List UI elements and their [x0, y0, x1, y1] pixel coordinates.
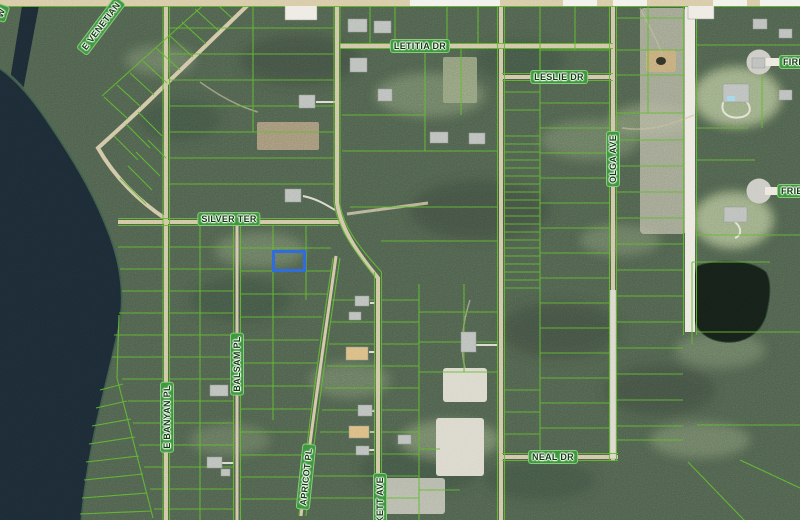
street-label-frie-partial: FRIE	[777, 184, 800, 198]
street-label-neal-dr: NEAL DR	[528, 450, 578, 464]
map-viewport[interactable]: W E VENETIAN LETITIA DR LESLIE DR FIRE F…	[0, 0, 800, 520]
street-label-e-banyan-pl: E BANYAN PL	[160, 381, 174, 452]
street-label-balsam-pl: BALSAM PL	[230, 332, 244, 395]
texture-overlay	[0, 0, 800, 520]
street-label-fire-partial: FIRE	[779, 55, 800, 69]
street-label-kett-ave-partial: KETT AVE	[373, 473, 387, 520]
street-label-olga-ave: OLGA AVE	[606, 131, 620, 187]
map-graphics	[0, 0, 800, 520]
street-label-letitia-dr: LETITIA DR	[390, 39, 450, 53]
street-label-silver-ter: SILVER TER	[197, 212, 260, 226]
street-label-leslie-dr: LESLIE DR	[530, 70, 588, 84]
selected-parcel-highlight[interactable]	[272, 250, 306, 272]
